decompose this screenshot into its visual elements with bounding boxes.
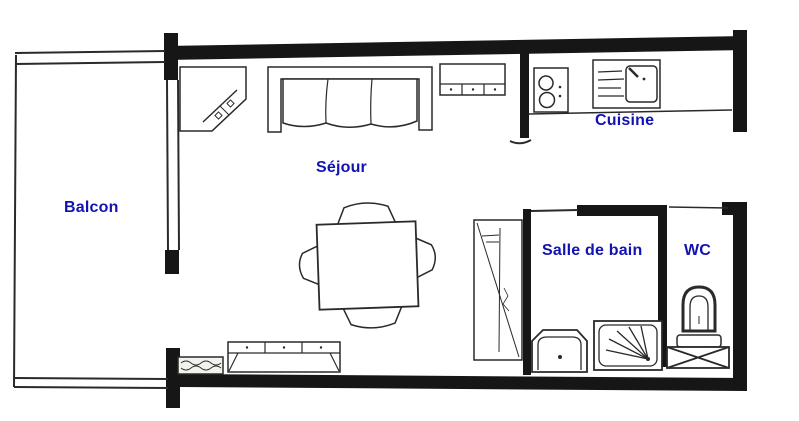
wall-bathroom-top <box>577 205 661 216</box>
wall-left-mid-stub <box>165 250 179 274</box>
room-label-salle-de-bain: Salle de bain <box>542 242 642 260</box>
wall-kitchen-divider <box>520 48 529 138</box>
sofa-icon <box>268 67 432 132</box>
shower-icon <box>594 321 662 370</box>
toilet-icon <box>677 287 721 347</box>
room-label-balcon: Balcon <box>64 199 119 217</box>
washbasin-icon <box>532 330 587 372</box>
wall-right-upper <box>733 30 747 132</box>
bathroom-door-line <box>531 210 578 211</box>
wall-window-outer <box>167 80 168 250</box>
wall-balcony-top-outer <box>15 51 165 53</box>
wall-balcony-bottom-outer <box>14 387 168 388</box>
room-label-sejour: Séjour <box>316 159 367 177</box>
sideboard-icon <box>228 342 340 372</box>
sink-icon <box>593 60 660 108</box>
floor-plan: Balcon Séjour Cuisine Salle de bain WC <box>0 0 799 421</box>
wall-balcony-bottom-inner <box>15 378 168 379</box>
hob-icon <box>534 68 568 112</box>
tall-closet-icon <box>474 220 522 360</box>
wall-balcony-left <box>14 55 16 387</box>
room-label-cuisine: Cuisine <box>595 112 654 130</box>
wc-door-line <box>669 207 728 208</box>
wall-balcony-top-inner <box>15 62 165 64</box>
radiator-icon <box>178 357 223 374</box>
wall-window-inner <box>178 80 179 250</box>
wall-right-lower <box>733 202 747 388</box>
furniture <box>178 60 729 374</box>
wall-cabinet-icon <box>440 64 505 95</box>
crossed-storage-icon <box>667 347 729 368</box>
room-label-wc: WC <box>684 242 711 260</box>
dining-table-icon <box>297 201 437 331</box>
wall-bottom <box>178 374 747 391</box>
wall-bathroom-divider <box>523 209 531 375</box>
wall-left-top-stub <box>164 33 178 80</box>
wall-top <box>165 36 747 60</box>
floor-plan-drawing <box>0 0 799 421</box>
wall-kitchen-divider-foot <box>510 140 531 143</box>
corner-cabinet-icon <box>180 67 246 131</box>
